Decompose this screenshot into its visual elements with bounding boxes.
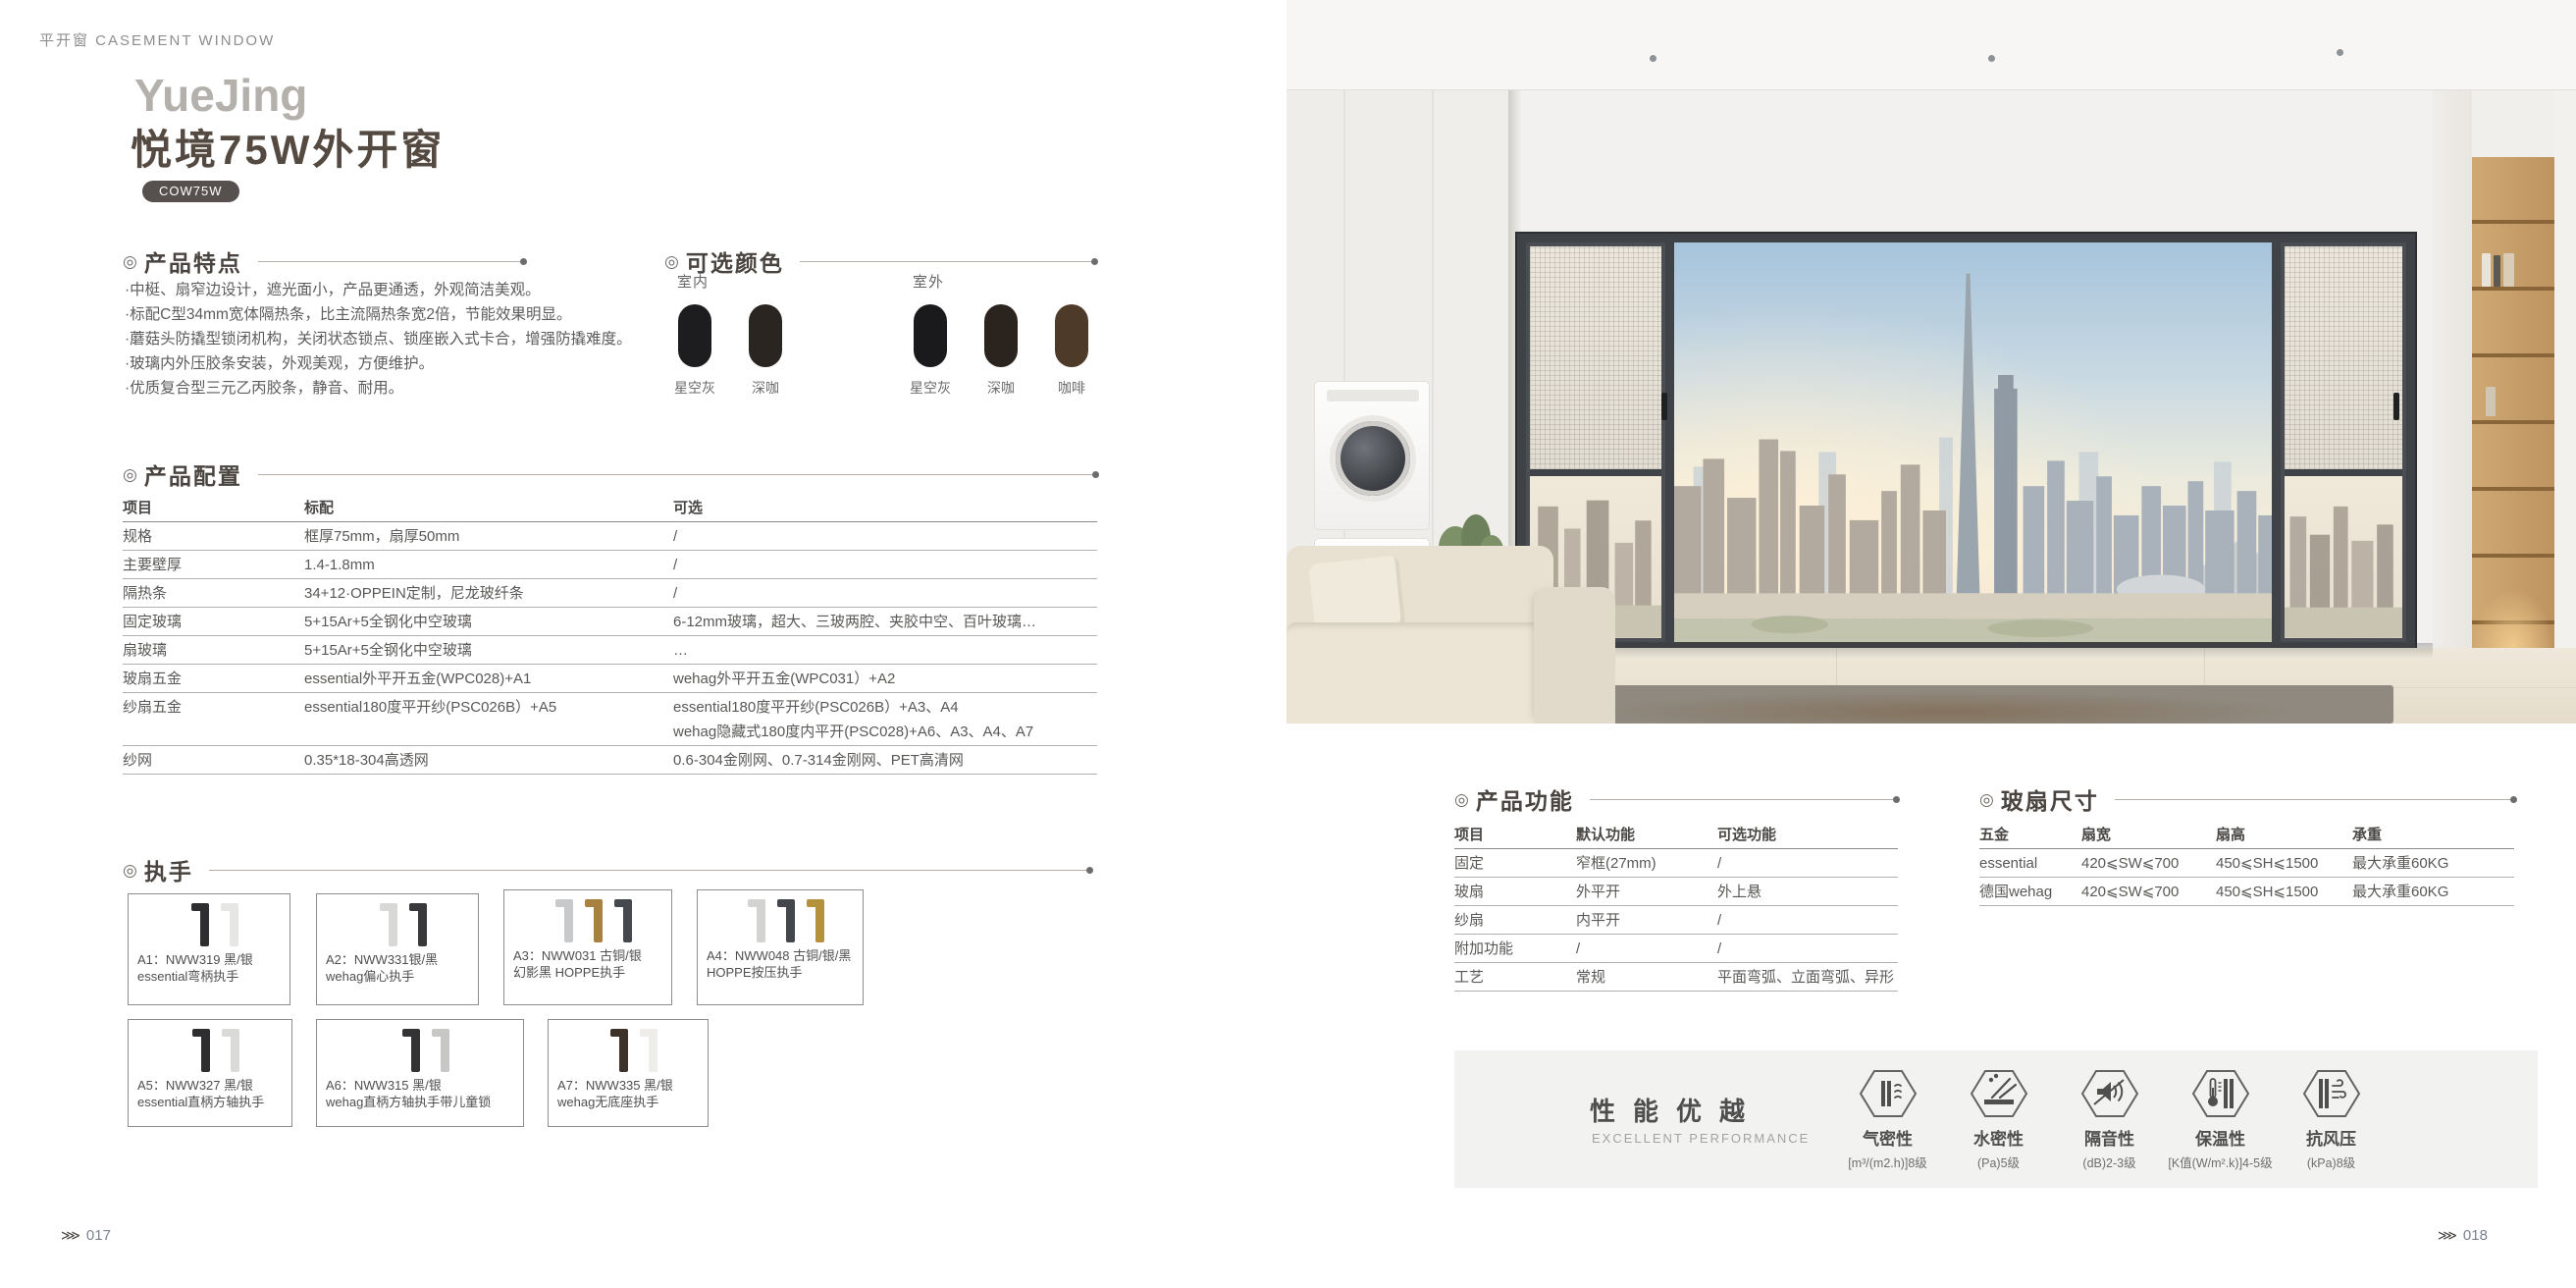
functions-row: 工艺 常规 平面弯弧、立面弯弧、异形 — [1454, 963, 1898, 992]
sash-size-cell: 最大承重60KG — [2352, 883, 2514, 901]
handle-caption: A3：NWW031 古铜/银 幻影黑 HOPPE执手 — [504, 945, 671, 987]
page-number-value: 018 — [2463, 1227, 2488, 1244]
swatch-pill — [749, 304, 782, 367]
config-cell: 隔热条 — [123, 584, 304, 603]
right-sash-glass — [2285, 476, 2402, 638]
functions-row: 附加功能 / / — [1454, 935, 1898, 963]
functions-cell: / — [1576, 939, 1717, 958]
performance-subtitle: EXCELLENT PERFORMANCE — [1592, 1131, 1810, 1146]
sash-size-cell: 450⩽SH⩽1500 — [2216, 854, 2352, 873]
swatch-pill — [984, 304, 1018, 367]
metric-air-tightness: 气密性 [m³/(m2.h)]8级 — [1832, 1066, 1943, 1171]
right-wall — [2433, 90, 2472, 724]
handle-code: A7：NWW335 黑/银 — [557, 1077, 699, 1094]
handle-card-a7: A7：NWW335 黑/银 wehag无底座执手 — [548, 1019, 709, 1127]
functions-cell: 平面弯弧、立面弯弧、异形 — [1717, 968, 1898, 987]
handle-a2-image — [317, 894, 478, 949]
config-row: 隔热条 34+12·OPPEIN定制，尼龙玻纤条 / — [123, 579, 1097, 608]
side-panel — [2554, 90, 2576, 724]
page-marker-icon: ⋙ — [61, 1227, 80, 1243]
sash-size-cell: 420⩽SW⩽700 — [2081, 854, 2216, 873]
config-cell: essential外平开五金(WPC028)+A1 — [304, 670, 673, 688]
water-tightness-icon — [1967, 1066, 2031, 1121]
mesh-screen-right — [2285, 246, 2402, 469]
shelf-light-glow — [2472, 589, 2554, 648]
handle-caption: A6：NWW315 黑/银 wehag直柄方轴执手带儿童锁 — [317, 1075, 523, 1116]
section-marker-icon: ◎ — [123, 466, 137, 483]
page-number-right: ⋙018 — [2438, 1227, 2488, 1244]
functions-cell: 附加功能 — [1454, 939, 1576, 958]
handle-a5-image — [129, 1020, 291, 1075]
metric-thermal-insulation: 保温性 [K值(W/m².k)]4-5级 — [2165, 1066, 2276, 1171]
window-handle-icon — [200, 903, 209, 946]
sash-size-cell: 450⩽SH⩽1500 — [2216, 883, 2352, 901]
book — [2494, 255, 2500, 287]
performance-title: 性能优越 — [1590, 1092, 1762, 1128]
metric-name: 保温性 — [2195, 1125, 2245, 1150]
handle-caption: A5：NWW327 黑/银 essential直柄方轴执手 — [129, 1075, 291, 1116]
handle-caption: A7：NWW335 黑/银 wehag无底座执手 — [549, 1075, 708, 1116]
heading-rule — [209, 870, 1091, 871]
handle-card-a3: A3：NWW031 古铜/银 幻影黑 HOPPE执手 — [503, 889, 672, 1005]
handle-caption: A1：NWW319 黑/银 essential弯柄执手 — [129, 949, 289, 991]
functions-cell: / — [1717, 854, 1898, 873]
page-number-value: 017 — [86, 1227, 111, 1244]
config-cell: 0.35*18-304高透网 — [304, 751, 673, 770]
functions-cell: 工艺 — [1454, 968, 1576, 987]
outdoor-swatch-row: 星空灰 深咖 咖啡 — [913, 304, 1089, 398]
config-cell: 纱扇五金 — [123, 698, 304, 717]
heading-rule — [1590, 799, 1898, 800]
functions-cell: 外平开 — [1576, 883, 1717, 901]
handle-desc: essential直柄方轴执手 — [137, 1094, 283, 1110]
sash-size-header-cell: 承重 — [2352, 826, 2514, 844]
config-cell: / — [673, 556, 1097, 574]
handle-a4-image — [698, 890, 863, 945]
functions-header-row: 项目 默认功能 可选功能 — [1454, 821, 1898, 849]
handle-a3-image — [504, 890, 671, 945]
config-cell: 固定玻璃 — [123, 613, 304, 631]
config-cell: 34+12·OPPEIN定制，尼龙玻纤条 — [304, 584, 673, 603]
section-marker-icon: ◎ — [123, 253, 137, 270]
outdoor-label: 室外 — [913, 271, 1089, 292]
config-cell: 1.4-1.8mm — [304, 556, 673, 574]
handle-card-a5: A5：NWW327 黑/银 essential直柄方轴执手 — [128, 1019, 292, 1127]
sash-size-cell: essential — [1979, 854, 2081, 873]
indoor-color-group: 室内 星空灰 深咖 — [677, 271, 783, 398]
handle-code: A3：NWW031 古铜/银 — [513, 947, 662, 964]
ceiling-spotlight — [2337, 49, 2343, 56]
heading-rule — [258, 474, 1097, 475]
color-swatch: 星空灰 — [913, 304, 948, 398]
sash-size-section-heading: ◎ 玻扇尺寸 — [1979, 782, 2515, 816]
config-cell: wehag外平开五金(WPC031）+A2 — [673, 670, 1097, 688]
config-cell: / — [673, 584, 1097, 603]
config-cell: essential180度平开纱(PSC026B）+A5 — [304, 698, 673, 717]
indoor-label: 室内 — [677, 271, 783, 292]
config-cell-line: wehag隐藏式180度内平开(PSC028)+A6、A3、A4、A7 — [673, 723, 1097, 741]
window-mullion — [1665, 242, 1674, 642]
sash-size-header-cell: 五金 — [1979, 826, 2081, 844]
functions-row: 固定 窄框(27mm) / — [1454, 849, 1898, 878]
functions-cell: 内平开 — [1576, 911, 1717, 930]
functions-cell: 窄框(27mm) — [1576, 854, 1717, 873]
handle-a1-image — [129, 894, 289, 949]
book — [2503, 253, 2514, 287]
window-shadow — [1517, 643, 2433, 659]
window-handle-icon — [786, 899, 795, 942]
sash-size-header-cell: 扇高 — [2216, 826, 2352, 844]
product-title: 悦境75W外开窗 — [131, 117, 445, 177]
functions-cell: / — [1717, 911, 1898, 930]
handle-code: A2：NWW331银/黑 — [326, 951, 469, 968]
sash-size-cell: 德国wehag — [1979, 883, 2081, 901]
color-swatch: 深咖 — [983, 304, 1019, 398]
window-handle-icon — [594, 899, 603, 942]
swatch-pill — [1055, 304, 1088, 367]
section-marker-icon: ◎ — [664, 253, 679, 270]
color-swatch: 深咖 — [748, 304, 783, 398]
window-handle-icon — [411, 1029, 420, 1072]
config-section-heading: ◎ 产品配置 — [123, 457, 1097, 491]
performance-metrics: 气密性 [m³/(m2.h)]8级 水密性 (Pa)5级 — [1832, 1066, 2387, 1171]
handles-section-heading: ◎ 执手 — [123, 853, 1091, 886]
config-header-cell: 项目 — [123, 499, 304, 517]
config-header-cell: 可选 — [673, 499, 1097, 517]
performance-bar: 性能优越 EXCELLENT PERFORMANCE 气密性 [m³/(m2.h… — [1454, 1050, 2538, 1188]
series-name-en: YueJing — [134, 69, 307, 122]
window-handle — [2393, 393, 2399, 420]
config-cell: 5+15Ar+5全钢化中空玻璃 — [304, 641, 673, 660]
metric-value: (Pa)5级 — [1977, 1153, 2020, 1171]
handle-desc: wehag偏心执手 — [326, 968, 469, 985]
ceiling-spotlight — [1988, 55, 1995, 62]
functions-cell: 外上悬 — [1717, 883, 1898, 901]
metric-name: 抗风压 — [2306, 1125, 2356, 1150]
feature-item: ·标配C型34mm宽体隔热条，比主流隔热条宽2倍，节能效果明显。 — [125, 302, 694, 327]
heading-rule — [258, 261, 525, 262]
metric-wind-pressure: 抗风压 (kPa)8级 — [2276, 1066, 2387, 1171]
metric-name: 气密性 — [1863, 1125, 1913, 1150]
wind-pressure-icon — [2299, 1066, 2364, 1121]
feature-item: ·蘑菇头防撬型锁闭机构，关闭状态锁点、锁座嵌入式卡合，增强防撬难度。 — [125, 327, 694, 351]
area-rug — [1579, 685, 2393, 724]
functions-section-heading: ◎ 产品功能 — [1454, 782, 1898, 816]
functions-row: 玻扇 外平开 外上悬 — [1454, 878, 1898, 906]
sash-size-header-cell: 扇宽 — [2081, 826, 2216, 844]
window-handle-icon — [649, 1029, 657, 1072]
dryer-control-panel — [1327, 390, 1419, 402]
section-marker-icon: ◎ — [1454, 791, 1469, 808]
feature-item: ·中梃、扇窄边设计，遮光面小，产品更通透，外观简洁美观。 — [125, 278, 694, 302]
config-cell: 6-12mm玻璃，超大、三玻两腔、夹胶中空、百叶玻璃… — [673, 613, 1097, 631]
window-handle-icon — [619, 1029, 628, 1072]
functions-cell: / — [1717, 939, 1898, 958]
right-sash — [2281, 242, 2406, 642]
feature-item: ·玻璃内外压胶条安装，外观美观，方便维护。 — [125, 351, 694, 376]
config-cell: 扇玻璃 — [123, 641, 304, 660]
handle-card-a6: A6：NWW315 黑/银 wehag直柄方轴执手带儿童锁 — [316, 1019, 524, 1127]
sash-size-cell: 420⩽SW⩽700 — [2081, 883, 2216, 901]
swatch-name: 咖啡 — [1058, 378, 1085, 398]
features-section-heading: ◎ 产品特点 — [123, 244, 525, 278]
handle-card-a1: A1：NWW319 黑/银 essential弯柄执手 — [128, 893, 290, 1005]
window-handle-icon — [418, 903, 427, 946]
config-row: 固定玻璃 5+15Ar+5全钢化中空玻璃 6-12mm玻璃，超大、三玻两腔、夹胶… — [123, 608, 1097, 636]
functions-table: 项目 默认功能 可选功能 固定 窄框(27mm) / 玻扇 外平开 外上悬 纱扇… — [1454, 821, 1898, 992]
handle-card-a4: A4：NWW048 古铜/银/黑 HOPPE按压执手 — [697, 889, 864, 1005]
config-row: 扇玻璃 5+15Ar+5全钢化中空玻璃 … — [123, 636, 1097, 665]
window-handle-icon — [815, 899, 824, 942]
section-marker-icon: ◎ — [1979, 791, 1994, 808]
thermal-insulation-icon — [2188, 1066, 2253, 1121]
dryer-door — [1330, 415, 1416, 502]
upper-cabinet — [2472, 90, 2554, 157]
functions-cell: 常规 — [1576, 968, 1717, 987]
handle-a7-image — [549, 1020, 708, 1075]
handle-card-a2: A2：NWW331银/黑 wehag偏心执手 — [316, 893, 479, 1005]
handle-code: A5：NWW327 黑/银 — [137, 1077, 283, 1094]
sash-size-row: 德国wehag 420⩽SW⩽700 450⩽SH⩽1500 最大承重60KG — [1979, 878, 2514, 906]
dryer — [1314, 381, 1430, 530]
city-view-small — [2285, 476, 2402, 638]
window-handle — [1661, 393, 1667, 420]
window-handle-icon — [441, 1029, 449, 1072]
handle-desc: wehag直柄方轴执手带儿童锁 — [326, 1094, 514, 1110]
config-cell: / — [673, 527, 1097, 546]
config-cell: 0.6-304金刚网、0.7-314金刚网、PET高清网 — [673, 751, 1097, 770]
window-handle-icon — [389, 903, 397, 946]
functions-cell: 固定 — [1454, 854, 1576, 873]
functions-row: 纱扇 内平开 / — [1454, 906, 1898, 935]
config-table: 项目 标配 可选 规格 框厚75mm，扇厚50mm / 主要壁厚 1.4-1.8… — [123, 494, 1097, 775]
swatch-pill — [678, 304, 711, 367]
config-cell: 主要壁厚 — [123, 556, 304, 574]
handle-code: A4：NWW048 古铜/银/黑 — [707, 947, 854, 964]
metric-value: [m³/(m2.h)]8级 — [1848, 1153, 1927, 1171]
city-view-glass — [1674, 242, 2272, 642]
mesh-screen-left — [1530, 246, 1661, 469]
functions-heading-label: 产品功能 — [1476, 782, 1574, 816]
section-marker-icon: ◎ — [123, 862, 137, 879]
color-swatch: 星空灰 — [677, 304, 712, 398]
color-swatch: 咖啡 — [1054, 304, 1089, 398]
functions-header-cell: 项目 — [1454, 826, 1576, 844]
config-row: 主要壁厚 1.4-1.8mm / — [123, 551, 1097, 579]
interior-photo — [1287, 0, 2576, 724]
sash-size-table: 五金 扇宽 扇高 承重 essential 420⩽SW⩽700 450⩽SH⩽… — [1979, 821, 2514, 906]
ceiling — [1287, 0, 2576, 90]
metric-water-tightness: 水密性 (Pa)5级 — [1943, 1066, 2054, 1171]
config-cell: … — [673, 641, 1097, 660]
handle-desc: HOPPE按压执手 — [707, 964, 854, 981]
window-handle-icon — [201, 1029, 210, 1072]
swatch-name: 深咖 — [752, 378, 779, 398]
sofa-armrest — [1534, 587, 1615, 724]
metric-sound-insulation: 隔音性 (dB)2-3级 — [2054, 1066, 2165, 1171]
sash-size-cell: 最大承重60KG — [2352, 854, 2514, 873]
config-cell-line: essential180度平开纱(PSC026B）+A3、A4 — [673, 698, 1097, 717]
feature-item: ·优质复合型三元乙丙胶条，静音、耐用。 — [125, 376, 694, 401]
config-cell: 玻扇五金 — [123, 670, 304, 688]
config-cell: essential180度平开纱(PSC026B）+A3、A4 wehag隐藏式… — [673, 698, 1097, 741]
handle-desc: 幻影黑 HOPPE执手 — [513, 964, 662, 981]
window-handle-icon — [623, 899, 632, 942]
metric-value: [K值(W/m².k)]4-5级 — [2168, 1153, 2272, 1171]
wood-shelving — [2472, 157, 2554, 648]
heading-rule — [800, 261, 1096, 262]
city-skyline — [1674, 242, 2272, 642]
config-cell: 5+15Ar+5全钢化中空玻璃 — [304, 613, 673, 631]
ceiling-spotlight — [1650, 55, 1656, 62]
sash-size-header-row: 五金 扇宽 扇高 承重 — [1979, 821, 2514, 849]
handle-a6-image — [317, 1020, 523, 1075]
metric-name: 水密性 — [1973, 1125, 2024, 1150]
handle-caption: A4：NWW048 古铜/银/黑 HOPPE按压执手 — [698, 945, 863, 987]
config-row: 纱扇五金 essential180度平开纱(PSC026B）+A5 essent… — [123, 693, 1097, 746]
sash-size-row: essential 420⩽SW⩽700 450⩽SH⩽1500 最大承重60K… — [1979, 849, 2514, 878]
metric-value: (dB)2-3级 — [2082, 1153, 2135, 1171]
handles-heading-label: 执手 — [144, 853, 193, 886]
feature-list: ·中梃、扇窄边设计，遮光面小，产品更通透，外观简洁美观。 ·标配C型34mm宽体… — [125, 278, 694, 401]
functions-cell: 纱扇 — [1454, 911, 1576, 930]
window-handle-icon — [231, 1029, 239, 1072]
config-cell: 规格 — [123, 527, 304, 546]
swatch-name: 星空灰 — [674, 378, 715, 398]
config-heading-label: 产品配置 — [144, 457, 242, 491]
metric-name: 隔音性 — [2084, 1125, 2134, 1150]
transom-bar — [2285, 469, 2402, 476]
handle-code: A1：NWW319 黑/银 — [137, 951, 281, 968]
window-mullion — [2272, 242, 2281, 642]
window-handle-icon — [230, 903, 238, 946]
category-label: 平开窗 CASEMENT WINDOW — [39, 29, 275, 50]
sound-insulation-icon — [2077, 1066, 2142, 1121]
handle-desc: wehag无底座执手 — [557, 1094, 699, 1110]
swatch-name: 深咖 — [987, 378, 1015, 398]
metric-value: (kPa)8级 — [2307, 1153, 2355, 1171]
window-handle-icon — [564, 899, 573, 942]
window-handle-icon — [757, 899, 765, 942]
book — [2486, 387, 2496, 416]
casement-window — [1517, 234, 2415, 651]
config-cell: 框厚75mm，扇厚50mm — [304, 527, 673, 546]
outdoor-color-group: 室外 星空灰 深咖 咖啡 — [913, 271, 1089, 398]
sash-size-heading-label: 玻扇尺寸 — [2001, 782, 2099, 816]
handle-desc: essential弯柄执手 — [137, 968, 281, 985]
book — [2482, 253, 2491, 287]
functions-header-cell: 可选功能 — [1717, 826, 1898, 844]
config-row: 纱网 0.35*18-304高透网 0.6-304金刚网、0.7-314金刚网、… — [123, 746, 1097, 775]
swatch-pill — [914, 304, 947, 367]
transom-bar — [1530, 469, 1661, 476]
swatch-name: 星空灰 — [910, 378, 951, 398]
handle-caption: A2：NWW331银/黑 wehag偏心执手 — [317, 949, 478, 991]
functions-header-cell: 默认功能 — [1576, 826, 1717, 844]
config-row: 规格 框厚75mm，扇厚50mm / — [123, 522, 1097, 551]
config-row: 玻扇五金 essential外平开五金(WPC028)+A1 wehag外平开五… — [123, 665, 1097, 693]
indoor-swatch-row: 星空灰 深咖 — [677, 304, 783, 398]
page-number-left: ⋙017 — [61, 1227, 111, 1244]
functions-cell: 玻扇 — [1454, 883, 1576, 901]
air-tightness-icon — [1856, 1066, 1920, 1121]
config-header-cell: 标配 — [304, 499, 673, 517]
config-header-row: 项目 标配 可选 — [123, 494, 1097, 522]
heading-rule — [2115, 799, 2515, 800]
catalog-spread: 平开窗 CASEMENT WINDOW YueJing 悦境75W外开窗 COW… — [0, 0, 2576, 1288]
page-marker-icon: ⋙ — [2438, 1227, 2457, 1243]
handle-code: A6：NWW315 黑/银 — [326, 1077, 514, 1094]
config-cell: 纱网 — [123, 751, 304, 770]
features-heading-label: 产品特点 — [144, 244, 242, 278]
model-badge: COW75W — [142, 181, 239, 202]
